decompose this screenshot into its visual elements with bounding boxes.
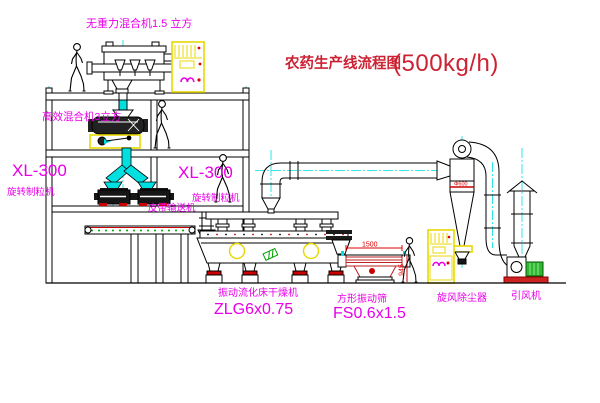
title-text: 农药生产线流程图 xyxy=(284,54,401,72)
exhaust-duct xyxy=(260,161,450,213)
dim-sieve-height: 945 xyxy=(399,264,406,276)
indicator-dot xyxy=(197,78,200,81)
indicator-dot xyxy=(447,262,450,265)
label-granulator2-model: XL-300 xyxy=(178,163,233,182)
motor-base-box xyxy=(90,135,140,148)
induced-draft-fan xyxy=(504,257,548,283)
person-figure xyxy=(69,44,86,91)
dim-sieve-length: 1500 xyxy=(362,242,378,249)
label-sieve-name: 方形振动筛 xyxy=(337,292,387,305)
label-mixer2: 高效混合机3立方 xyxy=(42,110,121,123)
label-cyclone: 旋风除尘器 xyxy=(437,291,487,304)
label-granulator2-name: 旋转制粒机 xyxy=(192,192,240,204)
high-efficiency-mixer xyxy=(88,100,148,148)
label-conveyor: 皮带输送机 xyxy=(148,202,196,214)
fan-motor xyxy=(526,262,543,276)
label-fan: 引风机 xyxy=(511,289,541,302)
granulator-1 xyxy=(94,188,134,206)
belt-conveyor xyxy=(85,226,195,234)
indicator-dot xyxy=(199,63,202,66)
label-sieve-model: FS0.6x1.5 xyxy=(333,305,406,322)
dryer-nozzles xyxy=(216,219,333,231)
control-cabinet-1 xyxy=(172,42,204,92)
label-granulator1-model: XL-300 xyxy=(12,161,67,180)
fluid-bed-dryer xyxy=(197,212,351,283)
cad-process-flow-drawing: 农药生产线流程图 (500kg/h) 无重力混合机1.5 立方 高效混合机3立方… xyxy=(0,0,600,403)
title-capacity: (500kg/h) xyxy=(393,50,499,77)
control-cabinet-2 xyxy=(428,230,454,283)
dryer-feet xyxy=(206,263,344,283)
label-granulator1-name: 旋转制粒机 xyxy=(7,186,55,198)
drawing-canvas: 农药生产线流程图 (500kg/h) 无重力混合机1.5 立方 高效混合机3立方… xyxy=(0,0,600,403)
indicator-dot xyxy=(448,236,451,239)
vibrating-sieve xyxy=(338,245,410,283)
dim-cyclone-diameter: Φ600 xyxy=(454,182,468,188)
label-dryer-model: ZLG6x0.75 xyxy=(214,301,293,318)
label-dryer-name: 振动流化床干燥机 xyxy=(218,286,298,299)
indicator-dot xyxy=(198,47,201,50)
label-mixer1: 无重力混合机1.5 立方 xyxy=(86,16,192,30)
